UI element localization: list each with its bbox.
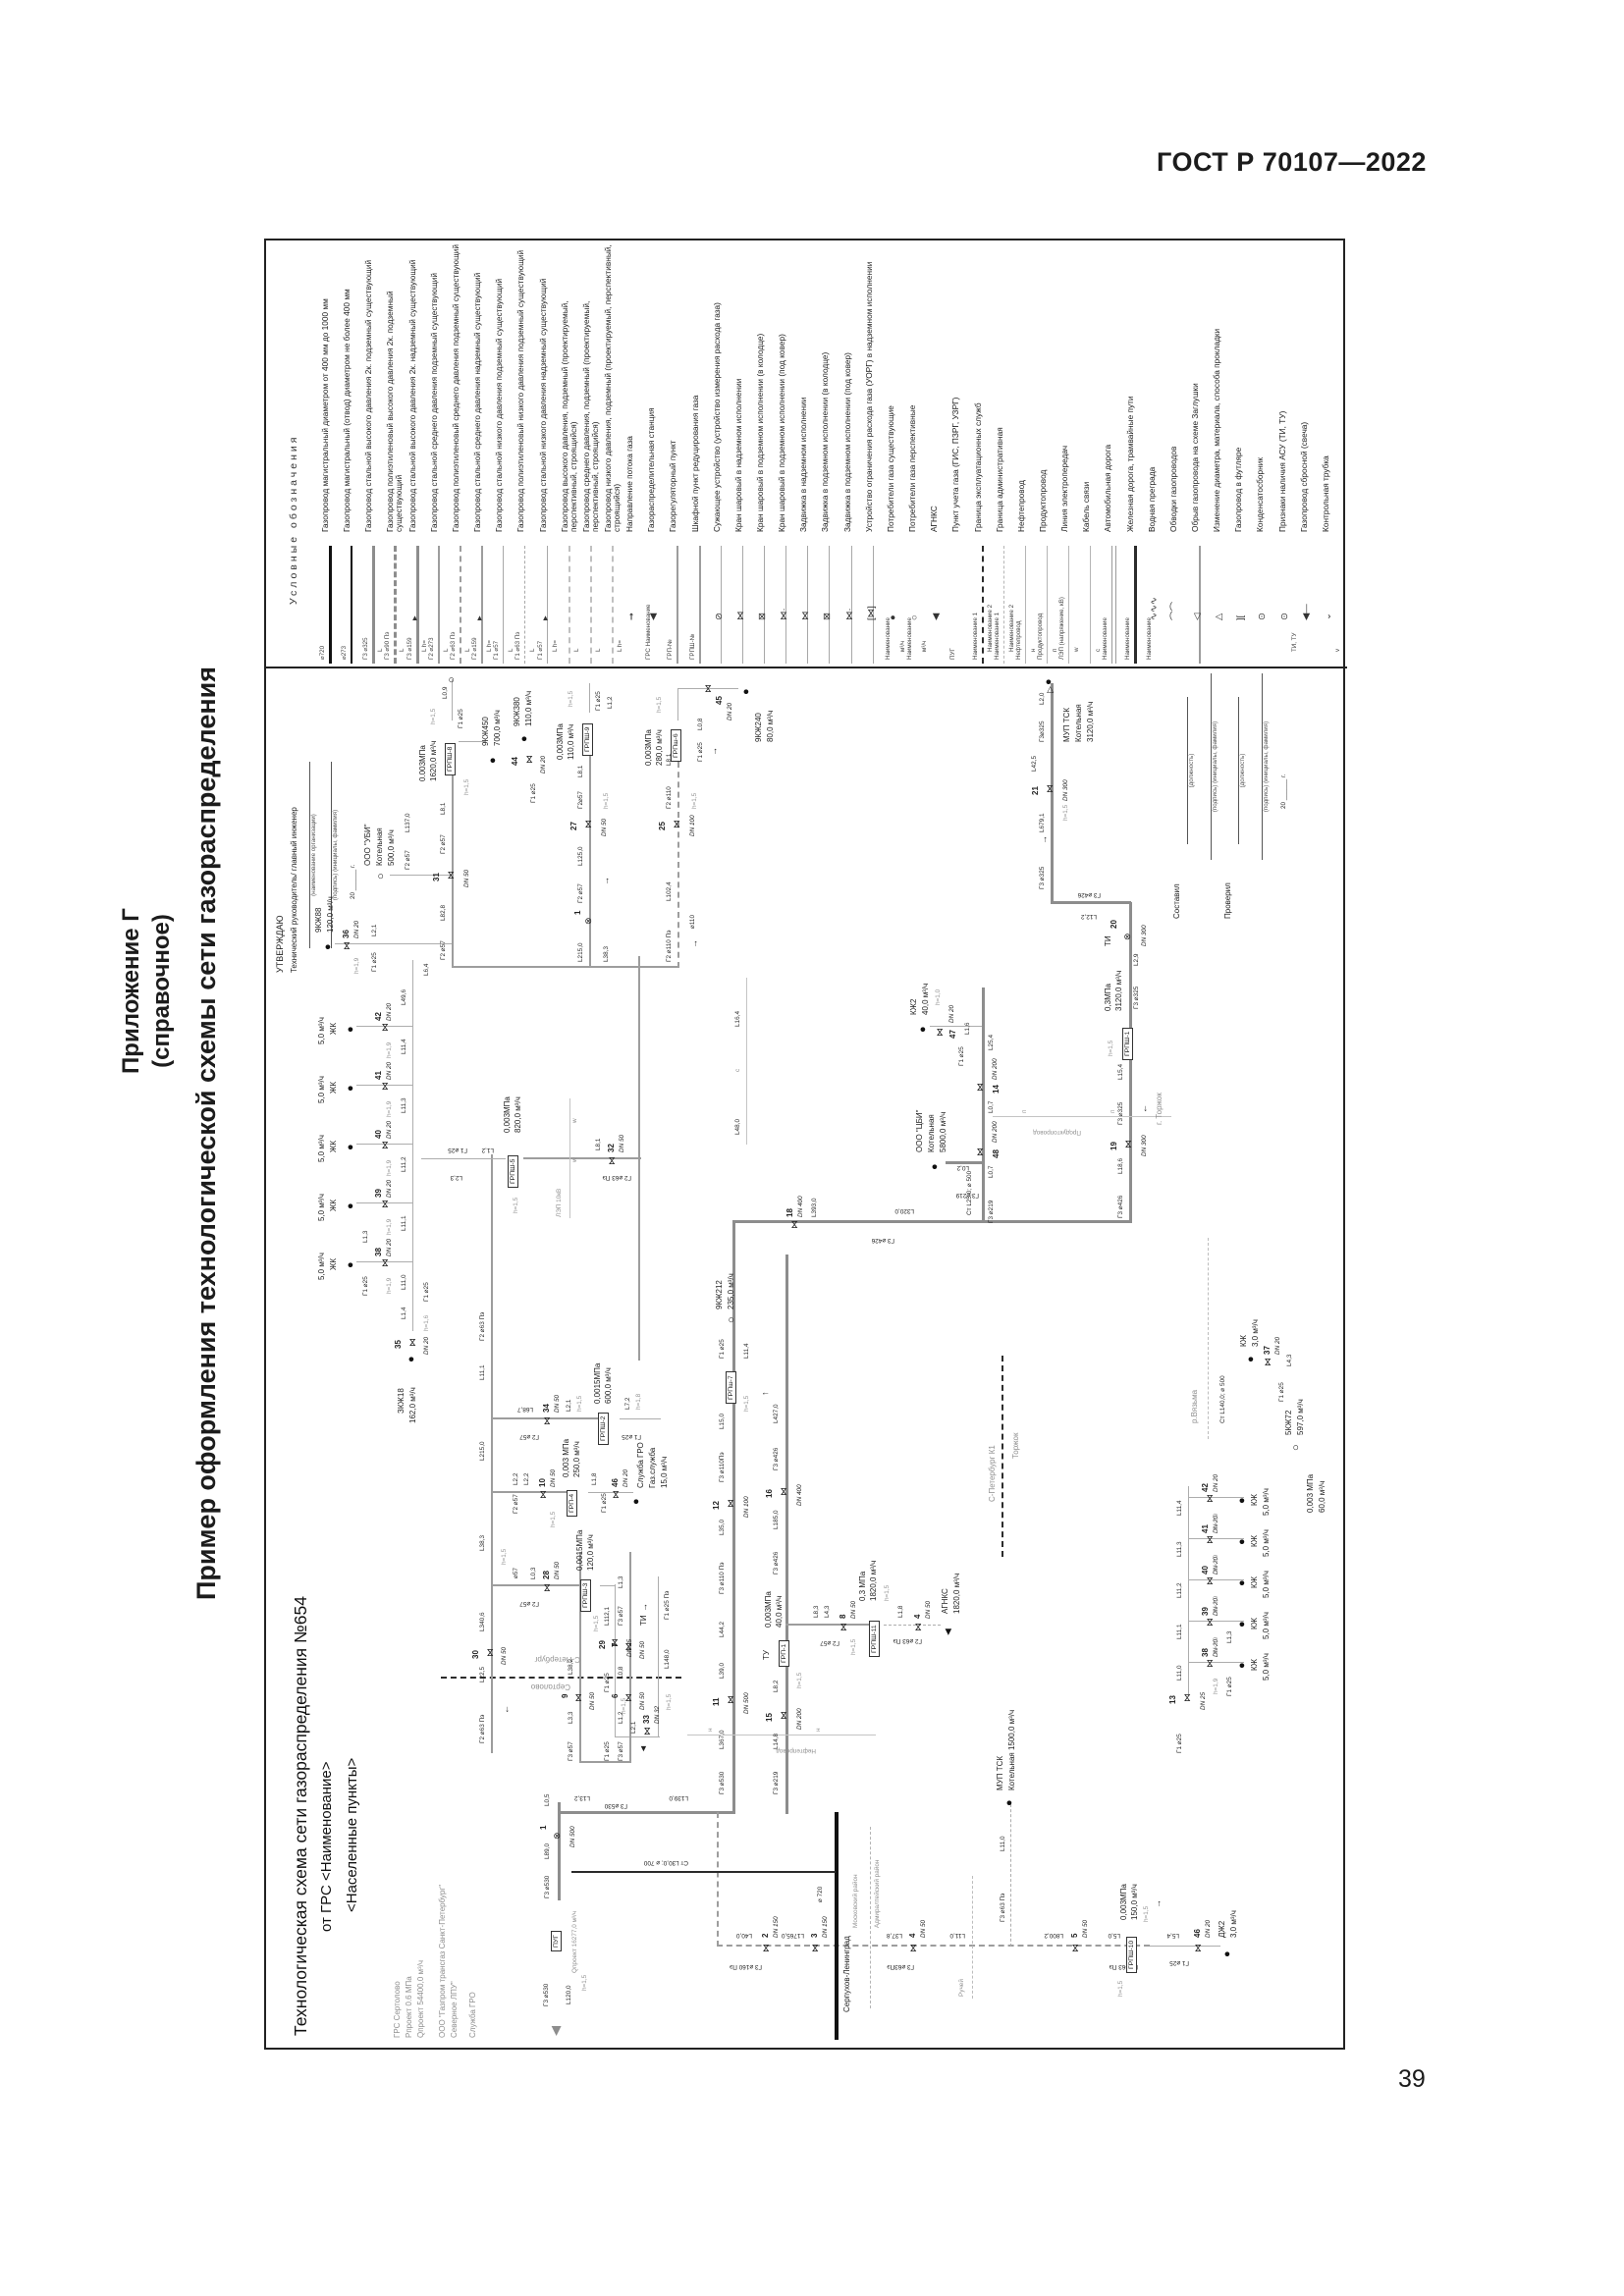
schematic-label: ГРПш-7 <box>726 1371 736 1404</box>
schematic-label: 15,0 м³/ч <box>661 1457 669 1488</box>
schematic-label: 44 <box>512 757 519 766</box>
schematic-label: L367,0 <box>720 1730 727 1749</box>
pipe-segment <box>558 1811 734 1814</box>
schematic-label: Г2 ⌀110 <box>667 786 674 809</box>
schematic-label: Г2 ⌀63 Пэ <box>603 1173 631 1180</box>
schematic-label: L12,2 <box>1081 912 1097 919</box>
schematic-label: ГРПШ-8 <box>445 743 456 775</box>
consumer-name: ЖК <box>330 1258 338 1270</box>
schematic-label: Г2 ⌀63 Пэ <box>480 1312 487 1341</box>
schematic-label: ⋈ <box>811 1944 820 1952</box>
schematic-label: Г3 ⌀110 Пэ <box>720 1563 727 1594</box>
consumer-dot: ● <box>346 1202 356 1209</box>
pipe-segment <box>571 1871 836 1873</box>
schematic-label: 34 <box>543 1404 551 1413</box>
schematic-label: DN 200 <box>993 1121 1000 1143</box>
schematic-label: ⋈ <box>612 1490 621 1499</box>
legend-item: Г3 ⌀325LГазопровод стальной высокого дав… <box>362 240 384 666</box>
schematic-label: 47 <box>949 1030 957 1039</box>
schematic-label: ● <box>323 943 334 950</box>
schematic-label: DN 20 <box>949 1005 956 1023</box>
legend-item: ⊠Задвижка в подземном исполнении (в коло… <box>819 240 840 666</box>
legend-item: ⋈·Задвижка в подземном исполнении (под к… <box>841 240 863 666</box>
schematic-label: ПУГ <box>551 1931 562 1951</box>
valve-height: h=1,9 <box>387 1160 394 1176</box>
pipe-segment <box>870 1827 871 2008</box>
schematic-label: 32 <box>608 1144 616 1152</box>
schematic-label: DN 500 <box>570 1826 577 1847</box>
valve-icon: ⋈ <box>1206 1494 1215 1503</box>
legend-item: LГазопровод среднего давления, подземный… <box>580 240 602 666</box>
legend-item-label: Газопровод магистральный диаметром от 40… <box>321 241 330 532</box>
drawing-surface: Условные обозначения ⌀720Газопровод маги… <box>266 237 1347 2048</box>
legend-symbol-water: Наименование∿∿∿ <box>1146 538 1167 666</box>
legend-symbol-obryv: ◁ <box>1189 538 1211 666</box>
valve-icon: ⋈ <box>381 1200 390 1208</box>
schematic-label: 280,0 м³/ч <box>656 729 664 766</box>
schematic-label: 3 <box>811 1934 819 1938</box>
valve-number: 38 <box>375 1248 383 1256</box>
schematic-label: 5 <box>1071 1934 1079 1938</box>
schematic-label: Г3 ⌀530 <box>545 1876 552 1898</box>
pipe-length: L1,3 <box>363 1231 370 1243</box>
legend-item-label: Кабель связи <box>1082 241 1091 532</box>
schematic-label: 29 <box>599 1640 607 1649</box>
schematic-label: L2,2 <box>524 1473 531 1485</box>
legend-symbol-kranK: ⊠ <box>754 538 776 666</box>
schematic-label: 27 <box>570 822 578 830</box>
pipe-segment <box>1051 901 1131 904</box>
legend-item-label: Нефтепровод <box>1017 241 1026 532</box>
schematic-label: ← <box>1140 1104 1149 1113</box>
schematic-label: ТУ <box>763 1650 771 1660</box>
schematic-label: h=1,5 <box>885 1585 892 1601</box>
schematic-label: ● <box>1246 1356 1257 1362</box>
consumer-flow: 5,0 м³/ч <box>1263 1571 1271 1598</box>
legend-item-label: Задвижка в надземном исполнении <box>799 241 808 532</box>
appendix-label: Приложение Г <box>116 714 146 1268</box>
schematic-label: DN 200 <box>797 1708 804 1730</box>
legend-item-label: Газопровод полиэтиленовый среднего давле… <box>452 241 460 532</box>
schematic-label: w <box>572 1157 579 1162</box>
schematic-label: 8 <box>839 1615 847 1619</box>
schematic-label: L38,3 <box>604 946 611 962</box>
schematic-label: L82,8 <box>441 905 448 921</box>
legend-item: ][ Газопровод в футляре <box>1232 240 1254 666</box>
legend-symbol-pr: L <box>580 538 602 666</box>
legend-item-label: Газопровод сбросной (свеча) <box>1300 241 1309 532</box>
schematic-label: Г1 ⌀25 <box>1169 1958 1189 1965</box>
schematic-label: ⋈ <box>611 1638 620 1647</box>
schematic-label: DN 20 <box>1206 1920 1213 1938</box>
schematic-label: L1,2 <box>608 697 615 709</box>
consumer-name: КЖ <box>1251 1618 1259 1629</box>
schematic-label: L68,7 <box>517 1405 533 1412</box>
schematic-label: Котельная <box>928 1114 936 1152</box>
pipe-segment <box>335 943 452 944</box>
pipe-segment <box>972 1876 973 1999</box>
schematic-label: L1765,0 <box>782 1931 804 1938</box>
schematic-label: Г2 ⌀57 <box>406 850 412 870</box>
schematic-label: ⋈ <box>643 1727 652 1735</box>
valve-height: h=1,9 <box>387 1219 394 1235</box>
consumer-flow: 5,0 м³/ч <box>318 1194 326 1221</box>
schematic-label: 0,003 МПа <box>563 1439 570 1477</box>
legend-item-label: Контрольная трубка <box>1322 241 1330 532</box>
consumer-name: КЖ <box>1251 1659 1259 1671</box>
legend-symbol-obvod: ⌒⌒ <box>1167 538 1189 666</box>
schematic-label: 0.003МПа <box>419 745 427 781</box>
schematic-label: h=1,5 <box>667 1694 674 1710</box>
schematic-label: 120,0 м³/ч <box>587 1534 595 1571</box>
pipe-segment <box>1051 683 1054 904</box>
schematic-label: L679,1 <box>1040 813 1047 832</box>
schematic-label: Служба ГРО <box>469 1992 477 2038</box>
schematic-label: УТВЕРЖДАЮ <box>276 915 285 973</box>
schematic-label: DN 50 <box>640 1692 647 1710</box>
schematic-label: L11,4 <box>402 1039 408 1054</box>
schematic-label: 37 <box>1264 1346 1272 1355</box>
schematic-label: DN 150 <box>774 1916 781 1938</box>
schematic-label: 20 <box>1110 920 1118 929</box>
schematic-label: ○ <box>727 1316 737 1323</box>
legend-item: ⌀720Газопровод магистральный диаметром о… <box>319 240 341 666</box>
consumer-name: ЖК <box>330 1082 338 1094</box>
consumer-name: ЖК <box>330 1200 338 1211</box>
schematic-label: 30 <box>472 1650 480 1659</box>
legend-item-label: Обводки газопроводов <box>1169 241 1178 532</box>
schematic-label: 0,003МПа <box>645 729 653 766</box>
schematic-label: DN 50 <box>590 1692 597 1710</box>
schematic-label: Г3 ⌀57 <box>619 1741 625 1761</box>
schematic-label: Торжок <box>1012 1433 1020 1459</box>
pipe-segment <box>717 1945 1150 1947</box>
schematic-label: h=1,5 <box>1144 1906 1151 1922</box>
schematic-label: ⋈ <box>727 1695 735 1704</box>
schematic-label: L148,0 <box>665 1649 672 1669</box>
schematic-label: Г1 ⌀25 <box>605 1673 612 1692</box>
schematic-label: L185,0 <box>774 1510 781 1529</box>
schematic-label: h=1,5 <box>502 1549 509 1565</box>
legend-symbol-zadvK: ⊠ <box>819 538 840 666</box>
schematic-label: 5КЖ72 <box>1285 1411 1293 1435</box>
legend-symbol-grs: ГРС Наименование◀ <box>645 538 667 666</box>
valve-number: 40 <box>1202 1566 1210 1575</box>
schematic-label: ⋈ <box>1046 784 1055 793</box>
schematic-label: Г3 ⌀325 <box>1118 1102 1125 1125</box>
schematic-label: 11 <box>713 1698 721 1706</box>
schematic-label: L44,2 <box>720 1622 727 1637</box>
legend-item: Г2 ⌀159▸L h=Газопровод стальной среднего… <box>471 240 493 666</box>
schematic-label: ЛЭП 10кВ <box>557 1189 564 1217</box>
legend-symbol-kontr: ⌄v <box>1320 538 1341 666</box>
schematic-label: ⋈ <box>673 820 681 828</box>
schematic-label: Газ.служба <box>649 1448 657 1488</box>
schematic-label: Г1 ⌀25 <box>1177 1734 1184 1753</box>
schematic-label: ⋈ <box>727 1499 735 1508</box>
legend-item-label: АГНКС <box>930 241 939 532</box>
consumer-dot: ● <box>346 1026 356 1033</box>
consumer-flow: 5,0 м³/ч <box>318 1017 326 1044</box>
legend-item-label: Газопровод в футляре <box>1234 241 1243 532</box>
schematic-label: 3120,0 м³/ч <box>1087 702 1095 742</box>
legend-item-label: Кран шаровый в надземном исполнении <box>734 241 743 532</box>
pipe-segment <box>884 1625 941 1626</box>
schematic-label: ⋈ <box>909 1944 918 1952</box>
schematic-label: L40,0 <box>736 1931 752 1938</box>
schematic-label: L11,3 <box>402 1097 408 1113</box>
legend-symbol-road: Наименование <box>1102 538 1123 666</box>
valve-number: 41 <box>375 1071 383 1080</box>
schematic-label: ГРПш-6 <box>671 729 681 762</box>
legend-item: ГРП-№Газорегуляторный пункт <box>667 240 688 666</box>
legend-item: Г1 ⌀63 ПэLГазопровод полиэтиленовый низк… <box>514 240 536 666</box>
schematic-label: 60,0 м³/ч <box>1319 1481 1326 1513</box>
schematic-label: 1 <box>540 1826 548 1830</box>
schematic-label: 110,0 м³/ч <box>568 724 575 760</box>
consumer-dot: ● <box>1237 1662 1248 1669</box>
legend-item: ⌀273Газопровод магистральный (отвод) диа… <box>341 240 362 666</box>
schematic-label: DN 50 <box>502 1647 509 1665</box>
schematic-label: Qпроект 54400,0 м³/ч <box>417 1960 425 2038</box>
schematic-label: Г1 ⌀25 <box>605 1741 612 1761</box>
schematic-label: L5,4 <box>1167 1931 1179 1938</box>
schematic-label: Г2 ⌀57 <box>514 1494 520 1514</box>
schematic-label: ● <box>406 1356 417 1362</box>
legend-item: ПУГПункт учета газа (ГИС, ПЗРГ, УЗРГ) <box>949 240 971 666</box>
valve-height: h=1,9 <box>1214 1637 1220 1653</box>
schematic-label: L800,2 <box>1044 1931 1063 1938</box>
schematic-label: DN 100 <box>744 1496 751 1518</box>
legend-symbol-uorg: [⋈] <box>863 538 885 666</box>
schematic-label: 0,003МПа <box>1120 1884 1128 1920</box>
legend-item: ⌒⌒Обводки газопроводов <box>1167 240 1189 666</box>
schematic-label: DN 50 <box>464 870 471 887</box>
schematic-label: 110,0 м³/ч <box>525 691 533 726</box>
consumer-dot: ● <box>1237 1621 1248 1628</box>
legend-item-label: Граница административная <box>996 241 1004 532</box>
schematic-label: L38,2 <box>568 1659 575 1675</box>
schematic-label: ГРПШ-5 <box>508 1155 518 1188</box>
legend-item: Г3 ⌀159▸L h=Газопровод стальной высокого… <box>406 240 428 666</box>
schematic-label: Ст L30,0; ⌀ 700 <box>644 1858 688 1865</box>
schematic-label: DN 50 <box>1083 1920 1090 1938</box>
schematic-label: L11,0 <box>402 1274 408 1290</box>
schematic-label: 40,0 м³/ч <box>776 1596 784 1628</box>
schematic-label: Г3 ⌀426 <box>1118 1196 1125 1218</box>
schematic-label: h=1,5 <box>1118 1981 1125 1997</box>
schematic-label: 13 <box>1169 1695 1177 1704</box>
schematic-label: 46 <box>612 1478 620 1487</box>
schematic-label: DN 50 <box>602 819 609 836</box>
pipe-segment <box>569 1098 570 1218</box>
schematic-label: ООО "УБИ" <box>364 824 372 866</box>
schematic-label: ◀ <box>549 2026 562 2036</box>
schematic-label: ⌀57 <box>514 1568 520 1578</box>
legend-item: НефтепроводнНефтепровод <box>1015 240 1037 666</box>
consumer-flow: 5,0 м³/ч <box>318 1076 326 1103</box>
legend-item: Г1 ⌀57▸L h=Газопровод стальной низкого д… <box>537 240 559 666</box>
legend-header: Условные обозначения <box>288 291 299 605</box>
legend-item: Г1 ⌀57LГазопровод стальной низкого давле… <box>493 240 514 666</box>
schematic-label: DN 50 <box>921 1920 928 1938</box>
legend-item-label: Водная преграда <box>1148 241 1157 532</box>
legend-symbol-izm: △ <box>1211 538 1232 666</box>
schematic-label: г. Торжок <box>1156 1093 1164 1125</box>
schematic-label: → <box>690 939 699 948</box>
legend-item-label: Конденсатосборник <box>1256 241 1265 532</box>
pipe-segment <box>1150 1946 1220 1947</box>
legend-item: НаименованиеАвтомобильная дорога <box>1102 240 1123 666</box>
schematic-label: н <box>708 1728 715 1732</box>
schematic-label: ГРПШ-10 <box>1126 1937 1137 1973</box>
schematic-label: → <box>640 1603 649 1612</box>
schematic-label: DN 20 <box>424 1337 431 1355</box>
valve-height: h=1,9 <box>1214 1514 1220 1529</box>
pipe-length: L1,3 <box>1227 1631 1234 1643</box>
schematic-label: L215,0 <box>480 1441 487 1461</box>
schematic-label: ● <box>1222 1950 1233 1957</box>
schematic-label: DN 200 <box>993 1058 1000 1080</box>
legend-symbol-mag273: ⌀273 <box>341 538 362 666</box>
schematic-label: КЖ <box>1240 1335 1248 1347</box>
schematic-label: ГРПШ-3 <box>580 1579 591 1612</box>
legend-symbol-svecha: ◀— <box>1298 538 1320 666</box>
schematic-label: ⋈ <box>539 1490 548 1499</box>
schematic-label: L13,2 <box>574 1793 590 1800</box>
schematic-label: L15,4 <box>1118 1064 1125 1080</box>
legend-item: ⊘Сужающее устройство (устройство измерен… <box>711 240 732 666</box>
consumer-dot: ● <box>1237 1497 1248 1504</box>
legend-item-label: Газопровод среднего давления, подземный … <box>582 241 600 532</box>
legend-symbol-potrS: Наименование●м³/ч <box>885 538 906 666</box>
legend-symbol-grp: ГРП-№ <box>667 538 688 666</box>
valve-height: h=1,9 <box>1214 1555 1220 1571</box>
schematic-label: L112,1 <box>605 1607 612 1626</box>
schematic-label: п <box>1022 1110 1029 1113</box>
schematic-label: Г1 ⌀25 <box>531 783 538 803</box>
valve-number: 40 <box>375 1130 383 1139</box>
valve-icon: ⋈ <box>1206 1576 1215 1585</box>
schematic-label: Г3⌀325 <box>1040 721 1047 742</box>
schematic-label: Г2 ⌀57 <box>820 1638 839 1645</box>
valve-number: 39 <box>1202 1607 1210 1616</box>
legend-item-label: Газопровод стальной высокого давления 2к… <box>364 241 373 532</box>
legend-item-label: Газопровод полиэтиленовый низкого давлен… <box>516 241 525 532</box>
legend-item-label: Потребители газа перспективные <box>908 241 917 532</box>
legend-item: ⊠Кран шаровый в подземном исполнении (в … <box>754 240 776 666</box>
schematic-label: L25,4 <box>989 1035 996 1050</box>
legend-item: ⋈Кран шаровый в надземном исполнении <box>732 240 754 666</box>
pipe-segment <box>620 1418 661 1419</box>
schematic-label: h=1,5 <box>1063 805 1070 821</box>
legend-divider <box>266 667 1347 669</box>
legend-item: Г2 ⌀273LГазопровод стальной среднего дав… <box>428 240 450 666</box>
schematic-label: L1,8 <box>592 1473 599 1485</box>
schematic-label: н <box>816 1728 823 1732</box>
schematic-label: ⋈ <box>936 1028 945 1037</box>
schematic-label: DN 20 <box>354 921 361 938</box>
schematic-label: 20 ______ г. <box>351 865 357 899</box>
schematic-label: Адмиралтейский район <box>875 1860 882 1928</box>
schematic-label: Г1 ⌀25 <box>596 691 603 711</box>
schematic-label: Г2 ⌀57 <box>519 1432 539 1439</box>
schematic-label: МУП ТСК <box>1063 708 1071 742</box>
appendix-type: (справочное) <box>146 714 177 1268</box>
schematic-label: 600,0 м³/ч <box>605 1367 613 1404</box>
schematic-label: L8,2 <box>774 1681 781 1692</box>
schematic-label: Г3 ⌀160 Пэ <box>730 1962 762 1969</box>
schematic-label: Г3 ⌀325 <box>1040 867 1047 889</box>
valve-height: h=1,9 <box>387 1101 394 1117</box>
schematic-label: ⋈ <box>780 1487 788 1496</box>
legend-item: Наименование○м³/чПотребители газа перспе… <box>906 240 928 666</box>
schematic-label: 10 <box>539 1478 547 1487</box>
schematic-label: 0,0015МПа <box>576 1530 584 1571</box>
consumer-dot: ● <box>346 1085 356 1092</box>
schematic-label: Технический руководитель/ главный инжене… <box>291 807 298 973</box>
schematic-label: DN 400 <box>797 1484 804 1506</box>
consumer-flow: 5,0 м³/ч <box>1263 1653 1271 1681</box>
schematic-label: ГРС Сертолово <box>394 1981 402 2038</box>
legend-symbol-asu: ⊙ТИ, ТУ <box>1276 538 1298 666</box>
schematic-label: ● <box>1044 678 1055 685</box>
schematic-label: DN 300 <box>1142 925 1149 946</box>
legend-symbol-granE: Наименование 1Наименование 2 <box>972 538 994 666</box>
schematic-label: L4,3 <box>825 1606 832 1618</box>
schematic-label: L39,0 <box>720 1663 727 1679</box>
schematic-label: Г2 ⌀63 Пэ <box>893 1636 922 1643</box>
legend-item: ГРС Наименование◀Газораспределительная с… <box>645 240 667 666</box>
legend-item: Г3 ⌀90 ПэLГазопровод полиэтиленовый высо… <box>384 240 406 666</box>
schematic-label: 6 <box>612 1694 620 1698</box>
schematic-label: h=1,5 <box>657 697 664 713</box>
schematic-label: L3,3 <box>568 1712 575 1724</box>
schematic-label: 9 <box>562 1694 569 1698</box>
schematic-label: ООО "Газпром трансгаз Санкт-Петербург" <box>439 1885 447 2038</box>
pipe-segment <box>452 679 453 721</box>
legend-item: ◀—Газопровод сбросной (свеча) <box>1298 240 1320 666</box>
schematic-label: Г3 ⌀426 <box>1078 890 1101 897</box>
schematic-label: 16 <box>766 1489 774 1498</box>
schematic-label: L48,0 <box>735 1119 742 1135</box>
schematic-label: ⋈ <box>704 684 713 693</box>
schematic-label: L11,2 <box>402 1156 408 1172</box>
schematic-label: L320,0 <box>894 1206 914 1213</box>
legend-symbol-zadvKv: ⋈· <box>841 538 863 666</box>
pipe-segment <box>993 1116 1171 1117</box>
schematic-label: ЗКЖ18 <box>398 1388 406 1414</box>
pipe-label: Г1 ⌀25 <box>363 1276 370 1296</box>
legend-symbol-kranN: ⋈ <box>732 538 754 666</box>
standard-header: ГОСТ Р 70107—2022 <box>1157 147 1427 178</box>
schematic-label: Г1 ⌀25 <box>959 1046 966 1066</box>
legend-symbol-flow: ➞ <box>623 538 645 666</box>
valve-number: 42 <box>1202 1483 1210 1492</box>
pipe-segment <box>1188 1486 1189 1694</box>
schematic-label: L2,3 <box>451 1173 462 1180</box>
schematic-label: L89,0 <box>545 1843 552 1859</box>
legend-item-label: Газораспределительная станция <box>647 241 656 532</box>
schematic-label: Г3 ⌀530 <box>720 1772 727 1794</box>
schematic-label: 9КЖ380 <box>514 697 521 726</box>
schematic-label: L1,8 <box>898 1606 905 1618</box>
schematic-label: 80,0 м³/ч <box>767 711 775 742</box>
schematic-label: 2 <box>762 1934 770 1938</box>
schematic-label: Г3 ⌀426 <box>774 1552 781 1575</box>
schematic-label: Серпухов-Ленинград <box>843 1936 851 2012</box>
legend-item-label: Газопровод стальной низкого давления под… <box>495 241 504 532</box>
